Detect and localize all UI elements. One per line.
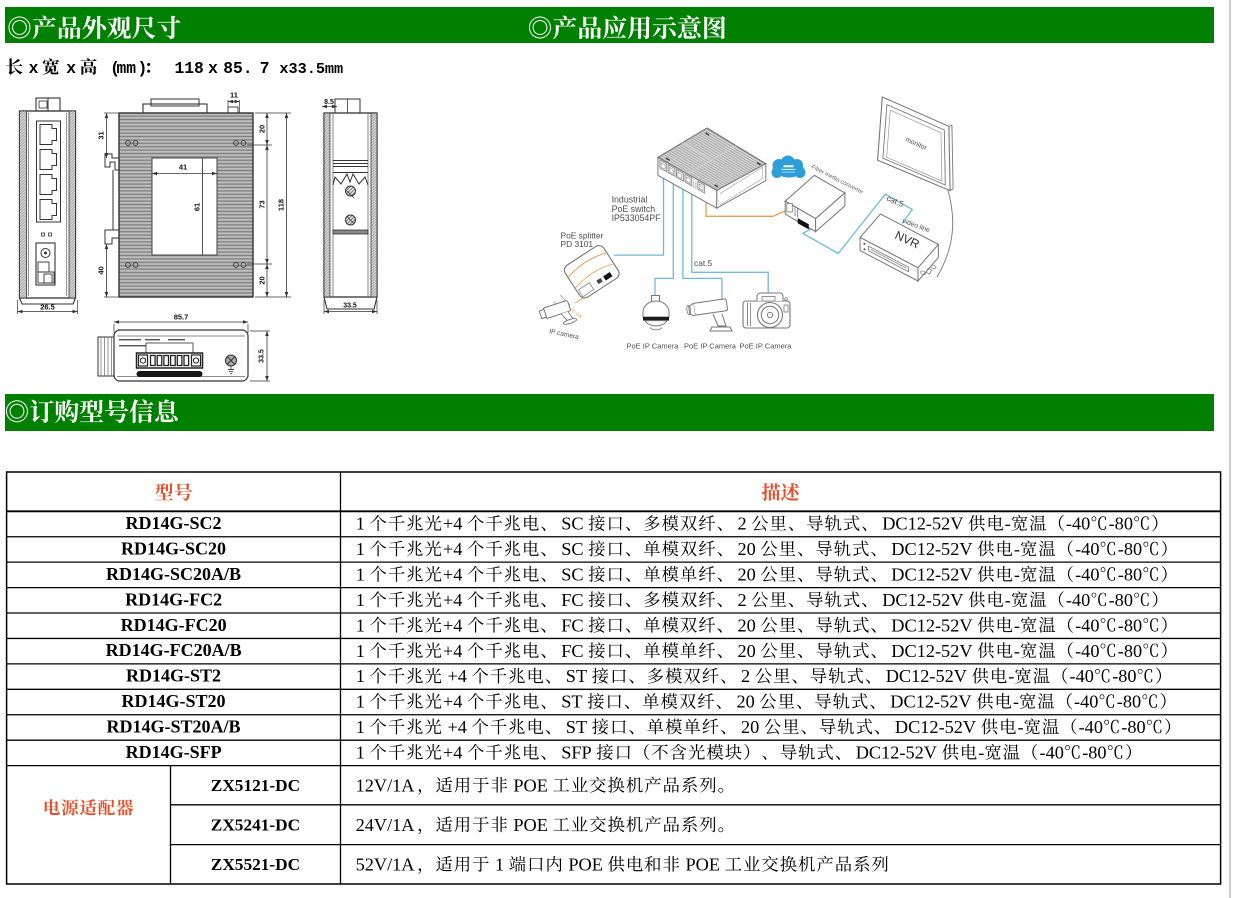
svg-text:ZX5121-DC: ZX5121-DC: [211, 776, 300, 795]
svg-text:x: x: [29, 59, 39, 78]
svg-text:-80: -80: [1118, 641, 1142, 661]
svg-text:-40: -40: [1066, 590, 1090, 610]
svg-text:41: 41: [179, 163, 187, 172]
svg-text:mm: mm: [325, 60, 343, 78]
svg-text:-40: -40: [1075, 641, 1099, 661]
svg-text:DC12-52V: DC12-52V: [891, 539, 972, 559]
svg-text:cat.5: cat.5: [885, 194, 905, 210]
svg-text:2: 2: [741, 666, 750, 686]
svg-text:-: -: [1013, 692, 1019, 712]
svg-text:20: 20: [738, 641, 756, 661]
svg-text:-: -: [978, 743, 984, 763]
svg-text:-: -: [1014, 615, 1020, 635]
svg-text:SC: SC: [561, 514, 583, 534]
svg-text:+4: +4: [443, 565, 462, 585]
svg-text:73: 73: [258, 200, 267, 208]
svg-text:FC: FC: [561, 590, 583, 610]
svg-text:20: 20: [258, 276, 267, 284]
svg-text:-40: -40: [1075, 539, 1099, 559]
svg-text:+4: +4: [443, 539, 462, 559]
svg-text:POE: POE: [513, 815, 548, 835]
svg-text:-: -: [1014, 539, 1020, 559]
svg-text:-: -: [1005, 514, 1011, 534]
svg-text:20: 20: [738, 565, 756, 585]
svg-text:POE: POE: [568, 854, 603, 874]
svg-text:-80: -80: [1118, 539, 1142, 559]
svg-text:RD14G-FC20: RD14G-FC20: [121, 615, 227, 635]
svg-text:+4: +4: [443, 641, 462, 661]
svg-text:1: 1: [356, 565, 365, 585]
svg-text:POE: POE: [513, 775, 548, 795]
svg-text:RD14G-SFP: RD14G-SFP: [126, 742, 222, 762]
svg-text:-40: -40: [1075, 615, 1099, 635]
svg-text:1: 1: [356, 666, 365, 686]
svg-text:1: 1: [356, 717, 365, 737]
svg-text:RD14G-FC2: RD14G-FC2: [125, 589, 222, 609]
svg-text:1: 1: [495, 854, 504, 874]
svg-text:-40: -40: [1079, 717, 1103, 737]
svg-text:20: 20: [738, 615, 756, 635]
svg-text:IP camera: IP camera: [549, 328, 580, 341]
svg-text:-: -: [1014, 641, 1020, 661]
svg-text:-80: -80: [1121, 717, 1145, 737]
svg-text:20: 20: [258, 125, 267, 133]
svg-text:-80: -80: [1118, 615, 1142, 635]
svg-text:+4: +4: [448, 666, 467, 686]
svg-text:DC12-52V: DC12-52V: [890, 692, 971, 712]
svg-text:RD14G-SC2: RD14G-SC2: [126, 513, 222, 533]
svg-text:+4: +4: [443, 590, 462, 610]
svg-text:SC: SC: [561, 539, 583, 559]
svg-text:SFP: SFP: [561, 743, 592, 763]
svg-text:RD14G-FC20A/B: RD14G-FC20A/B: [106, 640, 242, 660]
svg-text:1: 1: [356, 692, 365, 712]
svg-text:IP533054PF: IP533054PF: [612, 213, 662, 223]
svg-text:2: 2: [738, 590, 747, 610]
svg-text:-80: -80: [1082, 743, 1106, 763]
svg-text:-: -: [1014, 565, 1020, 585]
svg-text:-40: -40: [1075, 565, 1099, 585]
svg-text:): ): [138, 59, 148, 78]
svg-text:ST: ST: [561, 692, 582, 712]
svg-text:PoE IP Camera: PoE IP Camera: [684, 342, 737, 351]
svg-text:+4: +4: [448, 717, 467, 737]
svg-text:1: 1: [356, 641, 365, 661]
svg-text:-: -: [1005, 590, 1011, 610]
svg-text:24V/1A: 24V/1A: [356, 815, 416, 835]
svg-text:61: 61: [193, 203, 202, 211]
svg-text:FC: FC: [561, 641, 583, 661]
svg-text:ST: ST: [566, 666, 587, 686]
svg-text:DC12-52V: DC12-52V: [856, 743, 937, 763]
svg-text:DC12-52V: DC12-52V: [882, 514, 963, 534]
svg-text:85.7: 85.7: [174, 313, 189, 322]
svg-text:ST: ST: [566, 717, 587, 737]
svg-text:-40: -40: [1040, 743, 1064, 763]
svg-text:31: 31: [97, 131, 106, 139]
svg-text:RD14G-ST2: RD14G-ST2: [126, 666, 221, 686]
svg-text:+4: +4: [443, 615, 462, 635]
svg-text:33.5: 33.5: [343, 303, 357, 310]
svg-text:x: x: [208, 59, 218, 78]
svg-text:mm: mm: [117, 59, 137, 78]
svg-text:-: -: [1008, 666, 1014, 686]
svg-text:20: 20: [741, 717, 759, 737]
svg-text:RD14G-SC20: RD14G-SC20: [121, 539, 226, 559]
svg-text:1: 1: [356, 743, 365, 763]
svg-text:-40: -40: [1074, 692, 1098, 712]
svg-text:-40: -40: [1070, 666, 1094, 686]
svg-text:ZX5241-DC: ZX5241-DC: [211, 815, 300, 834]
svg-text:RD14G-ST20A/B: RD14G-ST20A/B: [107, 717, 241, 737]
svg-text:ZX5521-DC: ZX5521-DC: [211, 855, 300, 874]
svg-text:-80: -80: [1109, 514, 1133, 534]
svg-text:2: 2: [738, 514, 747, 534]
svg-text:1: 1: [356, 590, 365, 610]
svg-text:SC: SC: [561, 565, 583, 585]
svg-text:DC12-52V: DC12-52V: [891, 565, 972, 585]
svg-text:PoE IP Camera: PoE IP Camera: [740, 342, 793, 351]
svg-text:40: 40: [97, 266, 106, 274]
svg-text:52V/1A: 52V/1A: [356, 854, 416, 874]
svg-text:26.5: 26.5: [40, 303, 55, 312]
svg-text:7: 7: [260, 59, 270, 78]
svg-text:PoE IP Camera: PoE IP Camera: [627, 342, 680, 351]
svg-text:RD14G-SC20A/B: RD14G-SC20A/B: [106, 564, 241, 584]
svg-text:x: x: [66, 59, 76, 78]
svg-text:12V/1A: 12V/1A: [356, 775, 416, 795]
svg-text:85.: 85.: [223, 59, 252, 78]
svg-text:x33.5: x33.5: [279, 60, 325, 78]
svg-text:POE: POE: [686, 854, 721, 874]
svg-text:DC12-52V: DC12-52V: [886, 666, 967, 686]
svg-text:1: 1: [356, 615, 365, 635]
svg-text:1: 1: [356, 539, 365, 559]
svg-text:RD14G-ST20: RD14G-ST20: [122, 691, 226, 711]
svg-text:33.5: 33.5: [259, 349, 266, 363]
svg-text:20: 20: [737, 692, 755, 712]
svg-text:DC12-52V: DC12-52V: [891, 615, 972, 635]
svg-text:-80: -80: [1109, 590, 1133, 610]
svg-text:DC12-52V: DC12-52V: [882, 590, 963, 610]
svg-text:-80: -80: [1112, 666, 1136, 686]
svg-text:118: 118: [277, 199, 286, 211]
svg-text:-40: -40: [1066, 514, 1090, 534]
svg-text:-80: -80: [1118, 565, 1142, 585]
svg-text:cat.5: cat.5: [694, 258, 712, 268]
svg-text:20: 20: [738, 539, 756, 559]
svg-text:118: 118: [175, 59, 204, 78]
svg-text:DC12-52V: DC12-52V: [891, 641, 972, 661]
svg-text:11: 11: [230, 91, 238, 100]
svg-text:+4: +4: [443, 514, 462, 534]
svg-text:+4: +4: [443, 692, 462, 712]
svg-text:-: -: [1018, 717, 1024, 737]
svg-text:PD 3101: PD 3101: [561, 239, 594, 249]
svg-text:DC12-52V: DC12-52V: [895, 717, 976, 737]
svg-text:-80: -80: [1117, 692, 1141, 712]
svg-text:+4: +4: [443, 743, 462, 763]
svg-text:FC: FC: [561, 615, 583, 635]
svg-text:1: 1: [356, 514, 365, 534]
